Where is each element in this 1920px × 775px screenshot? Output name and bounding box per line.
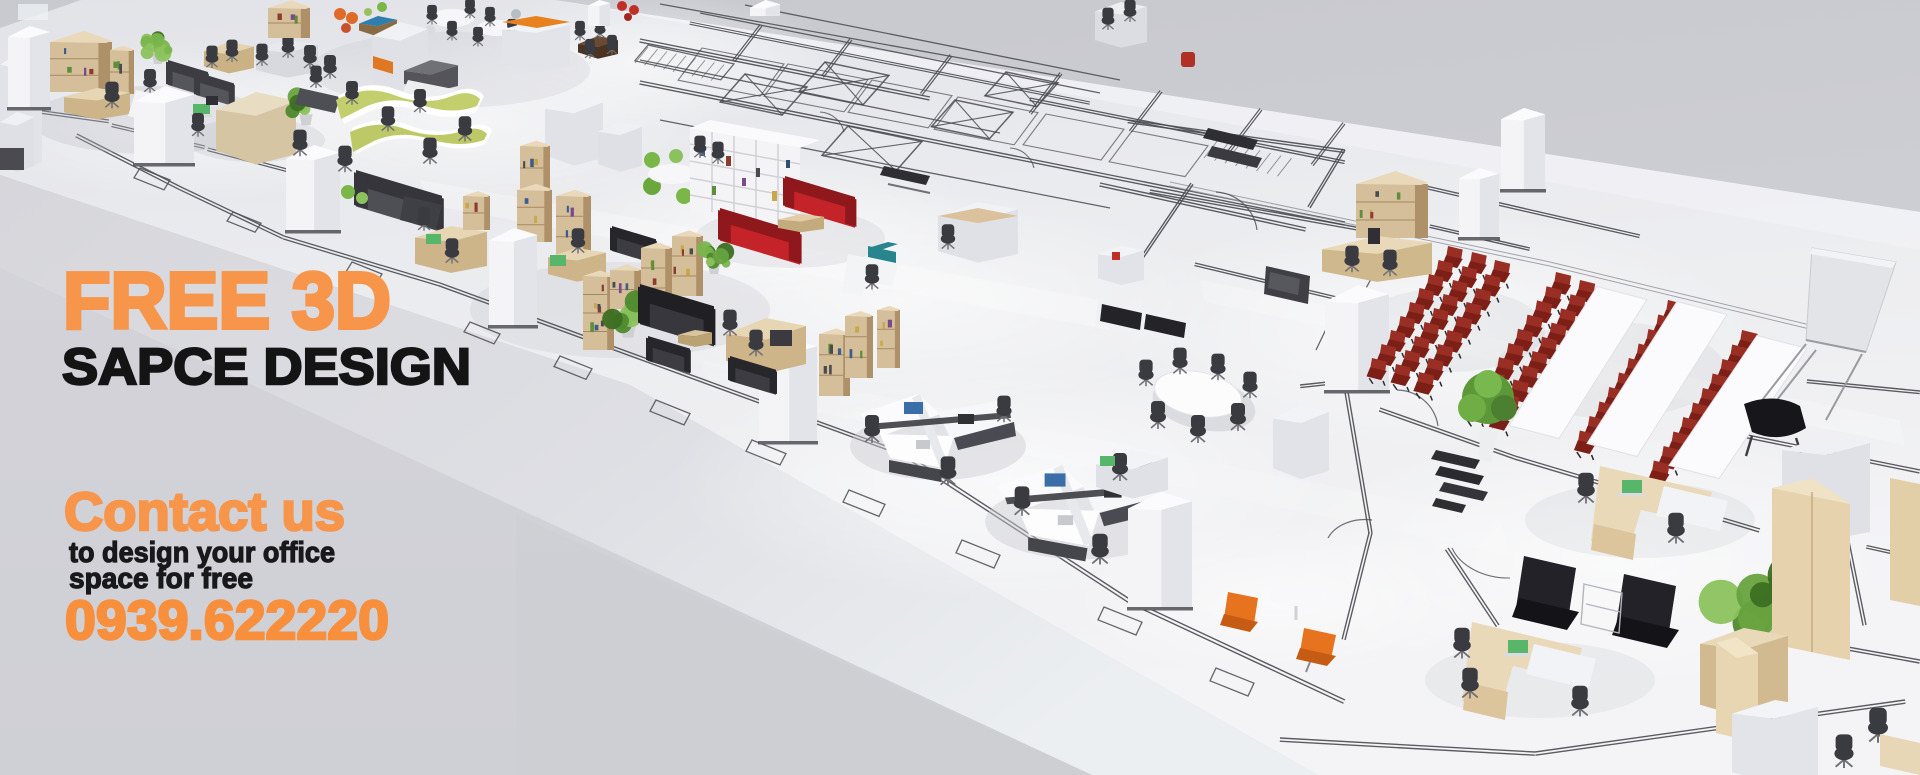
svg-text:Contact us: Contact us	[64, 482, 345, 542]
svg-text:0939.622220: 0939.622220	[65, 589, 389, 651]
svg-text:FREE 3D: FREE 3D	[63, 256, 391, 345]
svg-text:SAPCE DESIGN: SAPCE DESIGN	[62, 338, 471, 395]
